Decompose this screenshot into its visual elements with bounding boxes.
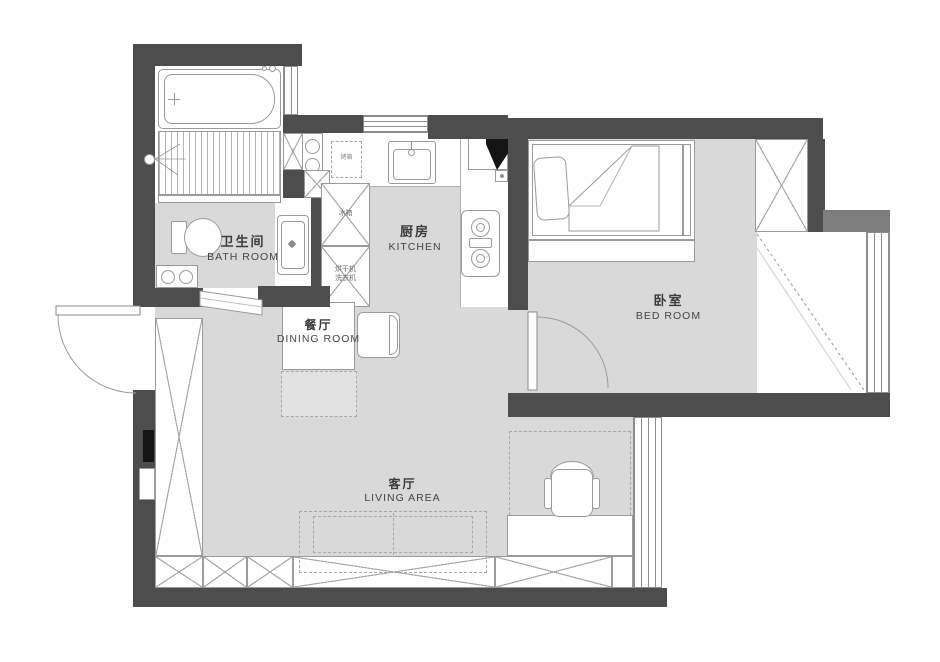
wall-bottom xyxy=(133,588,667,607)
office-chair-arm-left xyxy=(544,478,552,509)
wall-left-upper xyxy=(133,44,155,307)
living-label: 客厅 LIVING AREA xyxy=(355,477,450,505)
desk xyxy=(507,515,633,556)
bath-counter-knob-right xyxy=(179,270,193,284)
dining-label-en: DINING ROOM xyxy=(272,333,365,346)
wall-bedroom-left xyxy=(508,139,528,310)
bathtub-inner xyxy=(164,74,275,124)
kitchen-window xyxy=(363,115,428,133)
oven-label: 烤箱 xyxy=(331,155,362,162)
shower-head-icon xyxy=(144,154,155,165)
fridge-small-dot xyxy=(500,174,504,178)
wall-bathroom-top xyxy=(133,44,302,66)
wall-kitchen-junction xyxy=(283,170,304,198)
wall-niche-white xyxy=(139,468,155,500)
entrance-door-swing-arc xyxy=(58,315,136,393)
bottom-cabinet-3 xyxy=(247,556,293,588)
kitchen-label: 厨房 KITCHEN xyxy=(370,224,460,253)
wall-bedroom-top xyxy=(508,118,823,139)
bed-footboard xyxy=(683,144,691,236)
fridge-label: 冰箱 xyxy=(321,210,370,219)
wall-kitchen-top-left xyxy=(283,115,363,133)
washer-label: 洗衣机 xyxy=(321,275,370,284)
bathroom-label-en: BATH ROOM xyxy=(198,251,288,264)
bathroom-label-zh: 卫生间 xyxy=(198,234,288,250)
entrance-door-leaf xyxy=(56,306,140,315)
balcony-window xyxy=(866,232,890,393)
kitchen-faucet-base-icon xyxy=(408,149,415,156)
bedroom-label: 卧室 BED ROOM xyxy=(621,293,716,322)
hob-burner-top xyxy=(305,139,320,154)
tall-cabinet-left xyxy=(155,318,203,556)
kitchen-label-zh: 厨房 xyxy=(370,224,460,240)
bedroom-label-en: BED ROOM xyxy=(621,310,716,323)
wall-bath-right xyxy=(311,198,321,298)
bottom-cabinet-1 xyxy=(155,556,203,588)
balcony-diagonal-dashed xyxy=(757,234,864,390)
dryer-label: 烘干机 xyxy=(321,266,370,275)
living-label-en: LIVING AREA xyxy=(355,492,450,505)
bathtub-overflow-icon xyxy=(269,65,276,72)
stove-burner-top-inner xyxy=(476,223,485,232)
bath-shelf xyxy=(158,195,281,203)
bed-pillow xyxy=(533,156,570,221)
bedroom-label-zh: 卧室 xyxy=(621,293,716,309)
stove-burner-bottom-inner xyxy=(476,254,485,263)
wall-kitchen-top-right xyxy=(428,115,508,139)
living-label-zh: 客厅 xyxy=(355,477,450,491)
bottom-cabinet-5 xyxy=(495,556,612,588)
wall-bath-bottom-left xyxy=(155,288,203,307)
bathroom-label: 卫生间 BATH ROOM xyxy=(198,234,288,263)
bath-counter-knob-left xyxy=(161,270,175,284)
dining-chair-back xyxy=(389,315,398,355)
kitchen-label-en: KITCHEN xyxy=(370,241,460,254)
hob-cabinet xyxy=(283,133,303,170)
sofa-divider xyxy=(393,513,394,555)
floor-plan: 烤箱 冰箱 烘干机 洗衣机 xyxy=(0,0,940,662)
bathtub-faucet-icon xyxy=(168,93,180,105)
living-window xyxy=(633,417,662,588)
shower-area xyxy=(158,131,281,195)
balcony-diagonal-solid xyxy=(757,248,851,390)
dining-rug xyxy=(281,371,357,417)
dining-label-zh: 餐厅 xyxy=(272,318,365,332)
bathroom-window xyxy=(283,66,298,115)
bed-bench xyxy=(528,240,695,262)
stove-center-panel xyxy=(469,238,492,248)
bathtub-drain-icon xyxy=(262,66,267,71)
wardrobe xyxy=(755,139,808,232)
dining-label: 餐厅 DINING ROOM xyxy=(272,318,365,346)
wall-niche-black xyxy=(143,430,154,462)
office-chair-arm-right xyxy=(592,478,600,509)
wall-bedroom-bottom xyxy=(508,393,890,417)
office-chair-seat xyxy=(551,469,593,517)
bottom-cabinet-2 xyxy=(203,556,247,588)
bottom-cabinet-end xyxy=(612,556,633,588)
wall-balcony-top xyxy=(823,210,890,232)
